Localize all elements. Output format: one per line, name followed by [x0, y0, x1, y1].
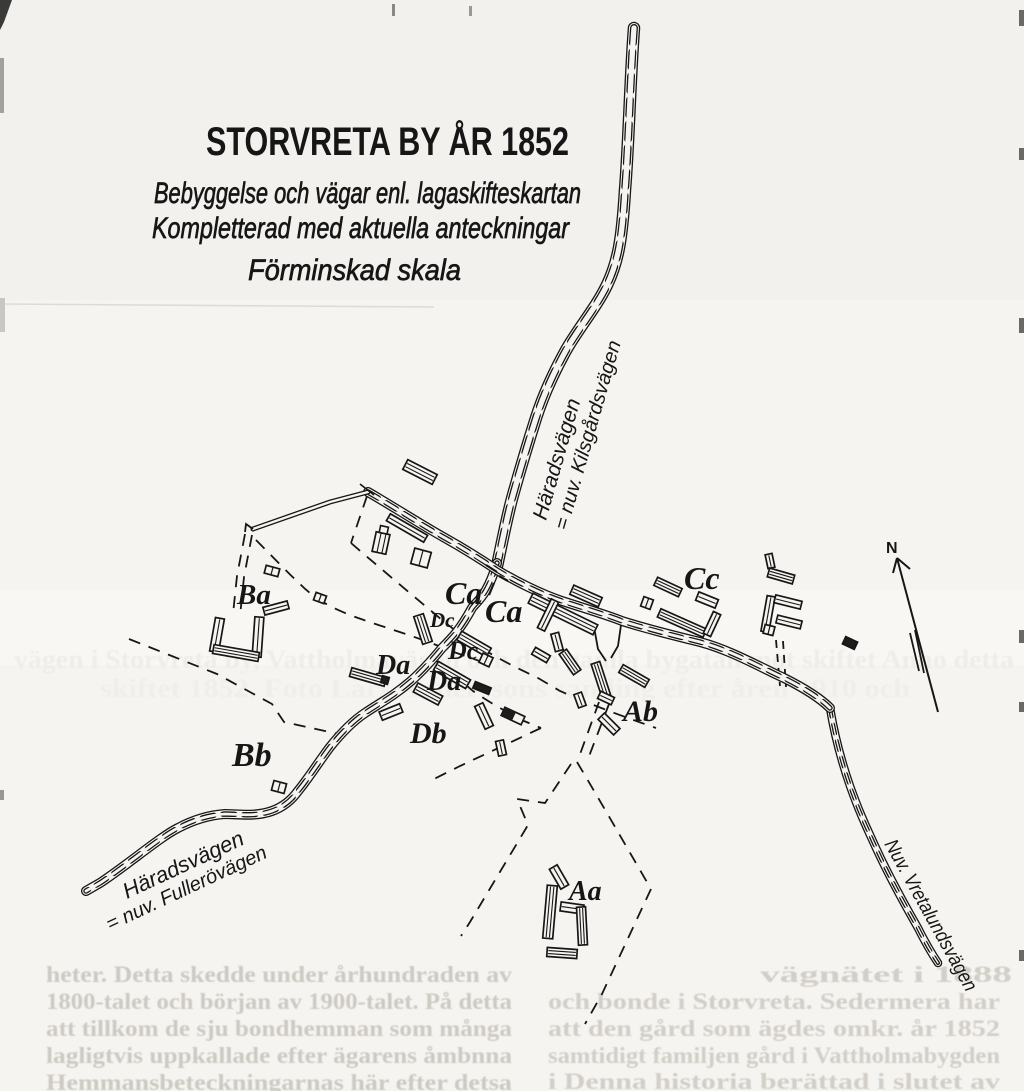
svg-text:Da: Da — [375, 650, 410, 681]
svg-text:Ca: Ca — [445, 575, 482, 611]
svg-text:samtidigt familjen gård i Vatt: samtidigt familjen gård i Vattholmabygde… — [548, 1043, 1000, 1069]
svg-text:lagligtvis uppkallade efter äg: lagligtvis uppkallade efter ägarens åmbn… — [46, 1043, 512, 1069]
svg-text:Hemmansbeteckningarnas här eft: Hemmansbeteckningarnas här efter detsa — [46, 1070, 512, 1091]
svg-text:N: N — [886, 540, 898, 557]
svg-text:Ca: Ca — [485, 593, 522, 629]
svg-text:Kompletterad med aktuella ante: Kompletterad med aktuella anteckningar — [152, 212, 570, 245]
svg-text:Bebyggelse och vägar enl. laga: Bebyggelse och vägar enl. lagaskifteskar… — [154, 177, 581, 210]
svg-text:Förminskad skala: Förminskad skala — [248, 254, 461, 287]
svg-text:Bb: Bb — [231, 737, 272, 774]
svg-text:och bonde i Storvreta. Sederme: och bonde i Storvreta. Sedermera har — [548, 989, 1000, 1015]
svg-text:Dc: Dc — [429, 608, 455, 632]
svg-text:Da: Da — [426, 666, 461, 697]
svg-text:Cc: Cc — [684, 560, 720, 596]
svg-text:i Denna historia berättad i sl: i Denna historia berättad i slutet av — [548, 1069, 1000, 1091]
svg-text:1800-talet och början av 1900-: 1800-talet och början av 1900-talet. På … — [46, 989, 512, 1015]
svg-text:Ba: Ba — [236, 579, 271, 611]
svg-text:Ab: Ab — [621, 695, 658, 728]
svg-text:Aa: Aa — [567, 876, 602, 907]
svg-text:heter. Detta skedde under århu: heter. Detta skedde under århundraden av — [46, 962, 512, 988]
svg-text:vägen i Storvreta by, Vattholm: vägen i Storvreta by, Vattholmavägen och… — [14, 645, 1014, 674]
svg-text:Dc: Dc — [447, 636, 479, 665]
svg-text:att den gård som ägdes omkr. å: att den gård som ägdes omkr. år 1852 — [548, 1016, 1000, 1042]
svg-text:STORVRETA BY ÅR 1852: STORVRETA BY ÅR 1852 — [206, 119, 569, 164]
svg-text:att tillkom de sju bondhemman: att tillkom de sju bondhemman som många — [46, 1016, 512, 1042]
svg-text:Db: Db — [409, 717, 447, 750]
